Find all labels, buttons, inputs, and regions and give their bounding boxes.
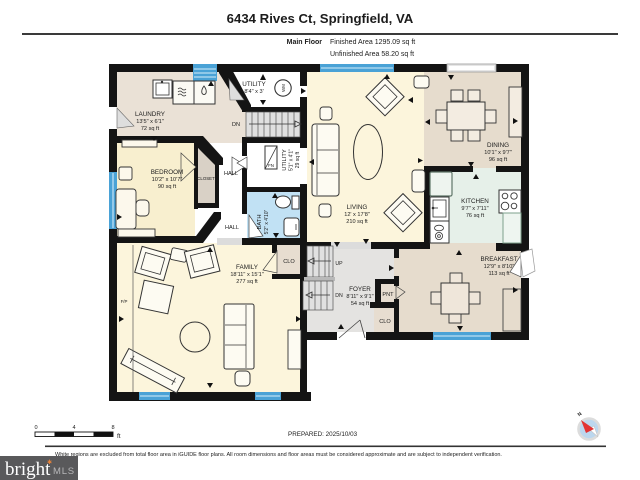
svg-text:F/P: F/P <box>121 299 128 304</box>
svg-text:BREAKFAST: BREAKFAST <box>480 256 517 263</box>
svg-text:BEDROOM: BEDROOM <box>151 169 184 176</box>
svg-text:5'2" x 4'10": 5'2" x 4'10" <box>264 209 270 234</box>
svg-text:PNT: PNT <box>382 292 394 298</box>
svg-text:210 sq ft: 210 sq ft <box>346 219 368 225</box>
svg-text:12'9" x 8'10": 12'9" x 8'10" <box>484 264 515 270</box>
svg-text:72 sq ft: 72 sq ft <box>141 126 160 132</box>
svg-text:UTILITY: UTILITY <box>242 81 266 88</box>
svg-text:8'11" x 9'1": 8'11" x 9'1" <box>346 294 373 300</box>
svg-text:BATH: BATH <box>257 214 263 229</box>
svg-text:UP: UP <box>335 261 343 267</box>
svg-text:18'11" x 15'1": 18'11" x 15'1" <box>230 272 263 278</box>
svg-text:LIVING: LIVING <box>347 204 368 211</box>
svg-text:9'7" x 7'11": 9'7" x 7'11" <box>461 206 488 212</box>
svg-text:8: 8 <box>111 425 114 431</box>
svg-text:Main Floor: Main Floor <box>287 39 323 46</box>
svg-text:277 sq ft: 277 sq ft <box>236 279 258 285</box>
svg-text:✱: ✱ <box>47 459 52 466</box>
svg-text:0: 0 <box>34 425 37 431</box>
svg-text:8'4" x 3': 8'4" x 3' <box>244 89 263 95</box>
svg-text:MLS: MLS <box>53 466 75 477</box>
svg-text:Unfinished Area 58.20 sq ft: Unfinished Area 58.20 sq ft <box>330 51 414 58</box>
svg-text:54 sq ft: 54 sq ft <box>351 301 370 307</box>
svg-text:DN: DN <box>335 293 343 299</box>
svg-text:4: 4 <box>72 425 75 431</box>
svg-text:5'1" x 4'1": 5'1" x 4'1" <box>289 149 295 171</box>
svg-text:KITCHEN: KITCHEN <box>461 198 489 205</box>
svg-text:White regions are excluded fro: White regions are excluded from total fl… <box>55 452 502 458</box>
svg-text:29 sq ft: 29 sq ft <box>295 151 301 168</box>
svg-text:10'1" x 9'7": 10'1" x 9'7" <box>484 150 512 156</box>
svg-text:FAMILY: FAMILY <box>236 264 259 271</box>
svg-text:10'2" x 10'7": 10'2" x 10'7" <box>152 177 183 183</box>
svg-text:13'5" x 6'1": 13'5" x 6'1" <box>136 119 164 125</box>
svg-text:CLO: CLO <box>283 259 295 265</box>
svg-text:DINING: DINING <box>487 142 509 149</box>
svg-text:6434 Rives Ct, Springfield, VA: 6434 Rives Ct, Springfield, VA <box>227 11 414 26</box>
svg-text:90 sq ft: 90 sq ft <box>158 184 177 190</box>
svg-text:bright: bright <box>5 459 51 480</box>
svg-text:CLOSET: CLOSET <box>197 176 215 181</box>
svg-text:FOYER: FOYER <box>349 286 371 293</box>
svg-text:HALL: HALL <box>225 225 239 231</box>
svg-text:UTILITY: UTILITY <box>282 149 288 171</box>
svg-text:HALL: HALL <box>224 171 238 177</box>
svg-text:12' x 17'8": 12' x 17'8" <box>344 212 370 218</box>
svg-text:DN: DN <box>232 122 240 128</box>
svg-text:WM: WM <box>281 84 286 92</box>
svg-text:113 sq ft: 113 sq ft <box>488 271 509 277</box>
svg-text:FN: FN <box>268 163 274 168</box>
svg-text:ft: ft <box>117 433 121 440</box>
svg-text:Finished Area 1295.09 sq ft: Finished Area 1295.09 sq ft <box>330 39 415 46</box>
svg-text:76 sq ft: 76 sq ft <box>466 213 485 219</box>
svg-text:PREPARED: 2025/10/03: PREPARED: 2025/10/03 <box>288 431 358 438</box>
svg-text:CLO: CLO <box>379 319 391 325</box>
svg-text:LAUNDRY: LAUNDRY <box>135 111 166 118</box>
svg-text:96 sq ft: 96 sq ft <box>489 157 508 163</box>
